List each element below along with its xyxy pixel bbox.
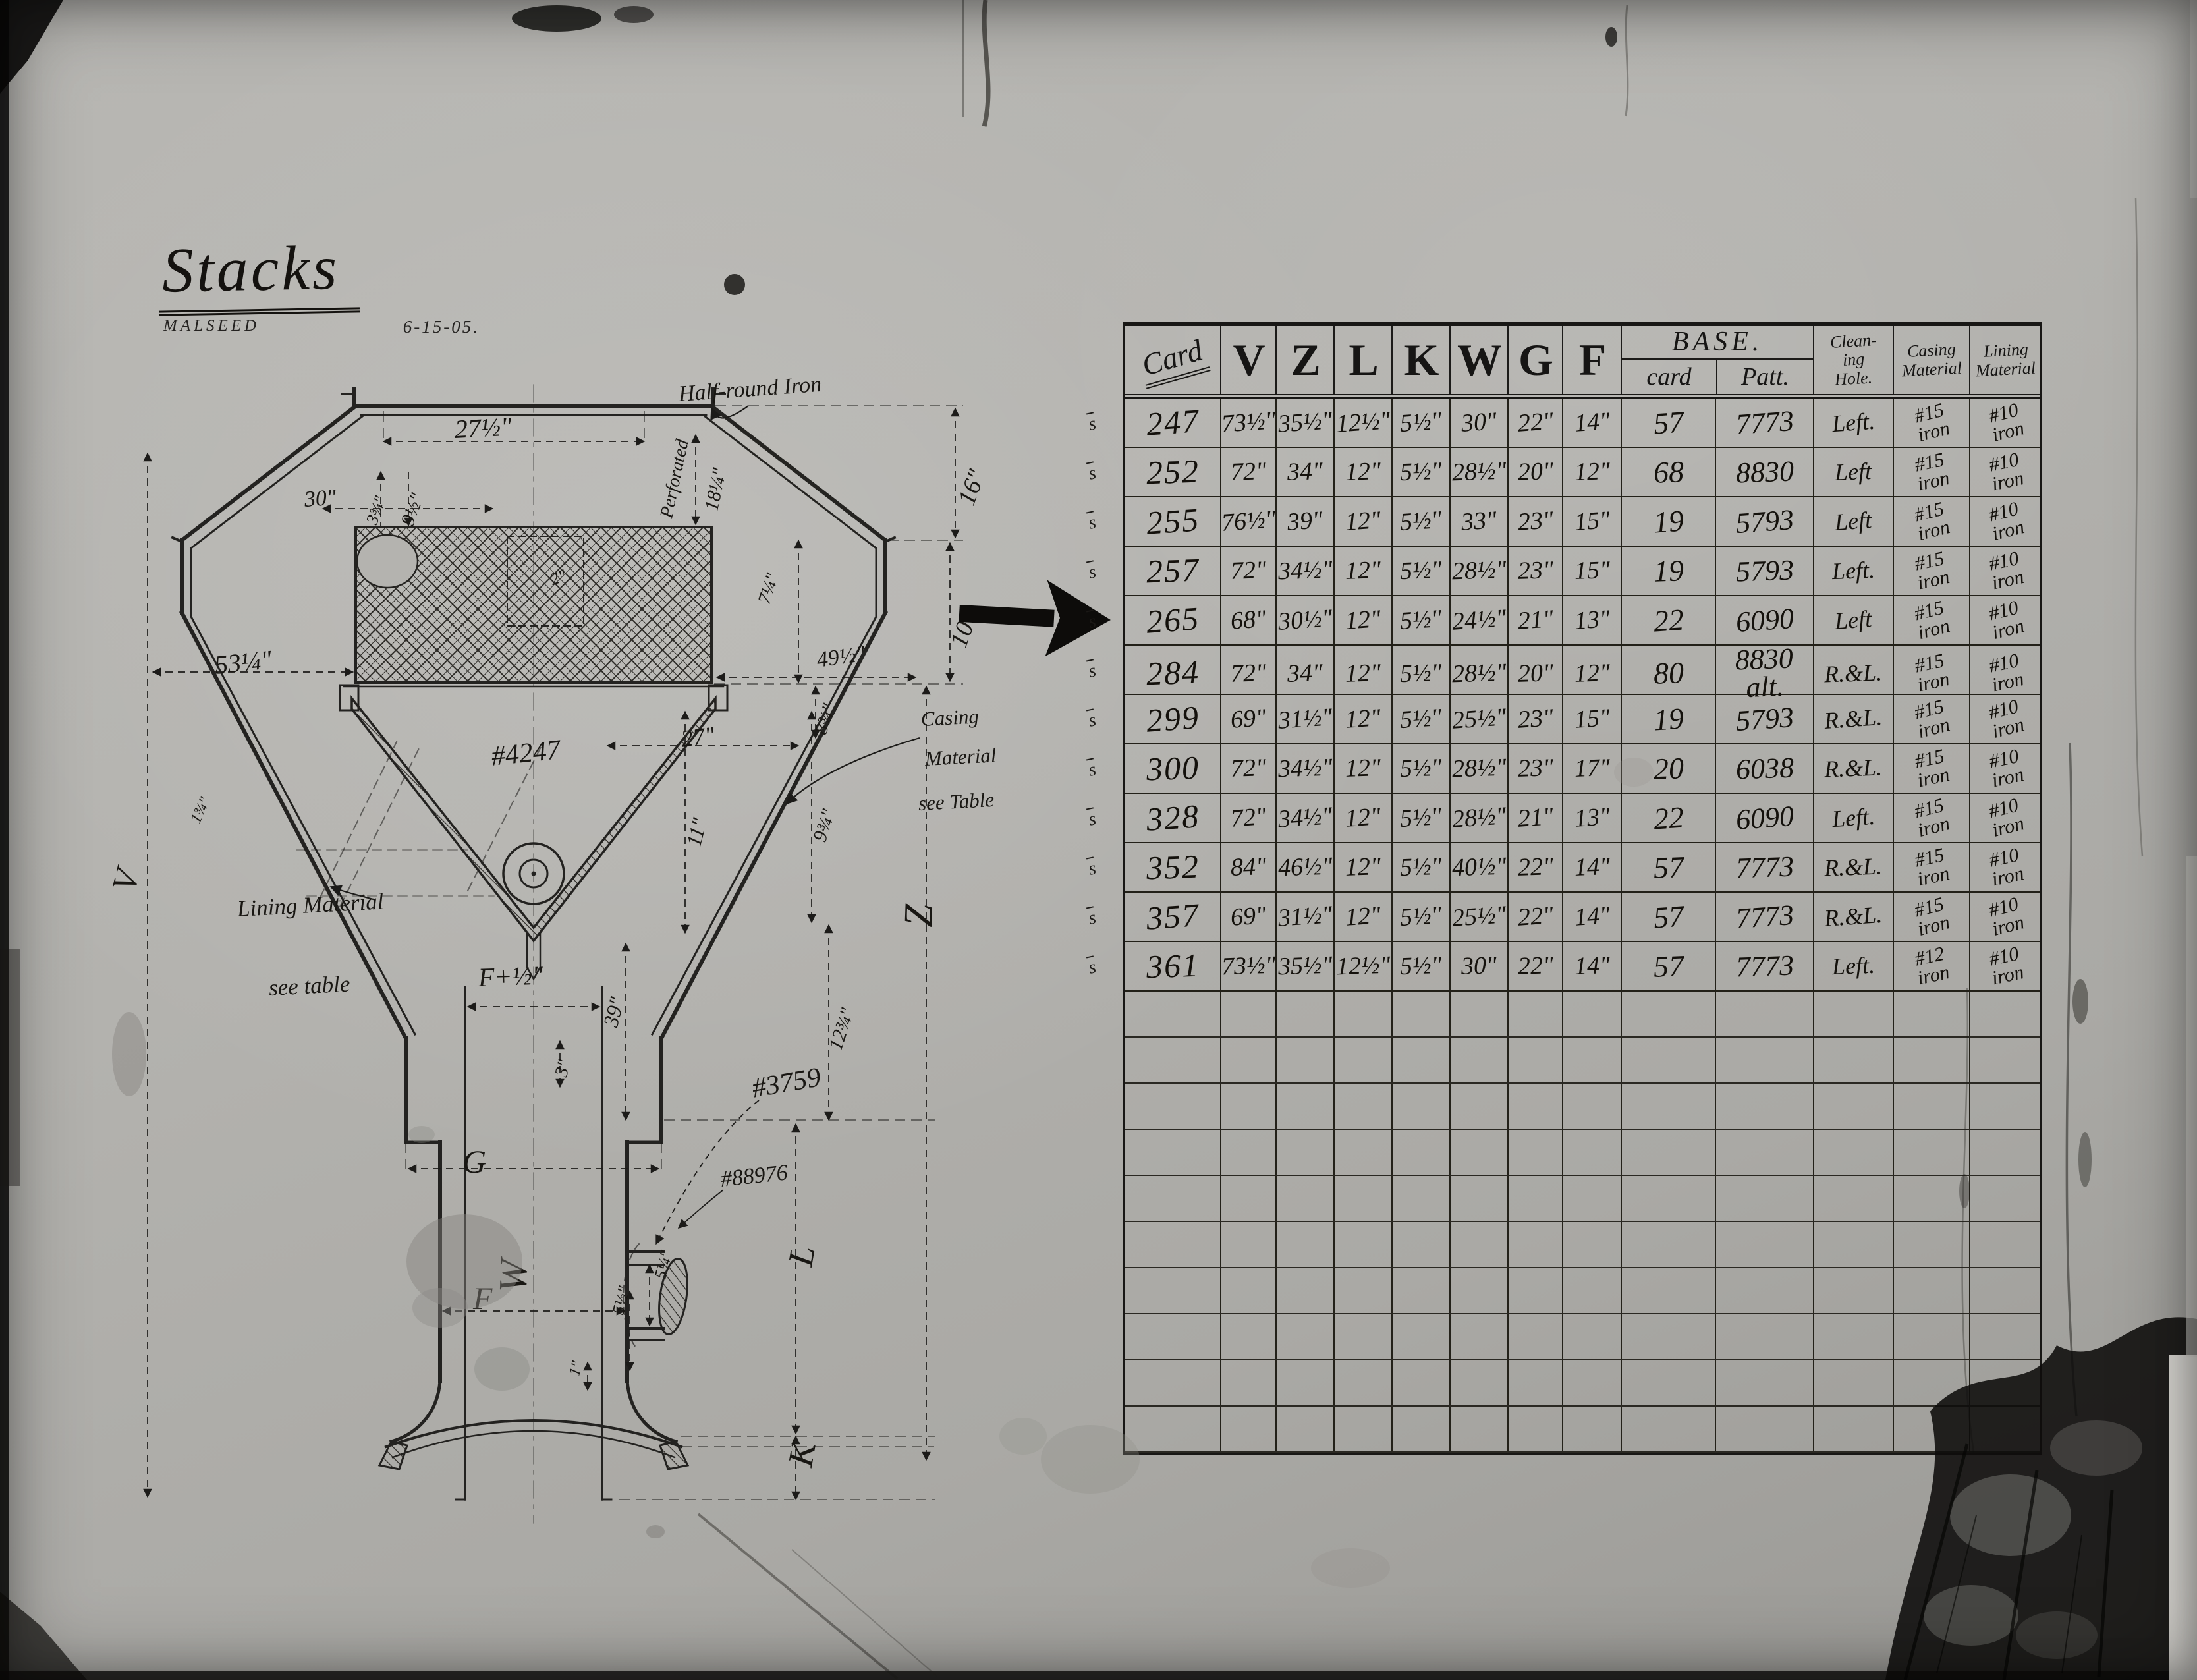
table-cell: 299 bbox=[1125, 695, 1221, 743]
table-cell: 28½" bbox=[1451, 744, 1509, 793]
table-cell: 19 bbox=[1622, 497, 1716, 546]
table-cell: 257 bbox=[1125, 547, 1221, 595]
table-cell: Left bbox=[1814, 448, 1894, 496]
table-row: 35769"31½"12"5½"25½"22"14"577773R.&L.#15… bbox=[1125, 893, 2040, 942]
table-cell bbox=[1277, 1407, 1335, 1451]
label-lining-material-line2: see table bbox=[268, 972, 350, 999]
table-cell: 6090 bbox=[1716, 794, 1814, 842]
table-cell bbox=[1335, 1038, 1393, 1082]
row-tick: s bbox=[1084, 888, 1126, 943]
table-cell: 12" bbox=[1563, 448, 1622, 496]
table-cell: 22" bbox=[1509, 399, 1563, 447]
table-cell: 12" bbox=[1335, 843, 1393, 891]
table-cell bbox=[1277, 1360, 1335, 1405]
table-cell bbox=[1125, 1084, 1221, 1129]
table-row bbox=[1125, 1084, 2040, 1130]
table-cell: 23" bbox=[1509, 744, 1563, 793]
table-cell: 14" bbox=[1563, 942, 1622, 990]
table-cell: 39" bbox=[1277, 497, 1335, 546]
table-cell: #15 iron bbox=[1894, 843, 1970, 891]
table-cell bbox=[1393, 992, 1451, 1036]
table-cell: #10 iron bbox=[1970, 893, 2041, 941]
table-cell: Left. bbox=[1814, 547, 1894, 595]
table-cell bbox=[1335, 1130, 1393, 1175]
table-cell: 5½" bbox=[1393, 942, 1451, 990]
table-cell bbox=[1894, 1268, 1970, 1313]
table-cell bbox=[1894, 1176, 1970, 1221]
table-cell: 5½" bbox=[1393, 794, 1451, 842]
label-w-dimension: W bbox=[493, 1259, 534, 1293]
table-cell: 17" bbox=[1563, 744, 1622, 793]
table-cell bbox=[1622, 992, 1716, 1036]
row-tick: s bbox=[1084, 789, 1126, 845]
table-cell: 12" bbox=[1335, 695, 1393, 743]
table-cell bbox=[1509, 1407, 1563, 1451]
table-cell bbox=[1563, 1268, 1622, 1313]
table-cell: 12" bbox=[1335, 646, 1393, 701]
table-cell: 72" bbox=[1221, 646, 1277, 701]
row-tick-marks: ssssssssssss bbox=[1088, 397, 1121, 990]
label-casing-material-line3: see Table bbox=[918, 789, 995, 814]
table-cell bbox=[1970, 1360, 2041, 1405]
table-cell: 5793 bbox=[1716, 547, 1814, 595]
table-cell bbox=[1335, 1360, 1393, 1405]
table-cell: 5½" bbox=[1393, 547, 1451, 595]
table-cell bbox=[1894, 1360, 1970, 1405]
table-cell bbox=[1622, 1038, 1716, 1082]
table-cell: 28½" bbox=[1451, 646, 1509, 701]
table-cell bbox=[1221, 1038, 1277, 1082]
table-row bbox=[1125, 1222, 2040, 1268]
table-cell: #10 iron bbox=[1970, 547, 2041, 595]
table-cell bbox=[1221, 1222, 1277, 1267]
table-row: 32872"34½"12"5½"28½"21"13"226090Left.#15… bbox=[1125, 794, 2040, 843]
table-cell bbox=[1125, 1314, 1221, 1359]
table-cell: #12 iron bbox=[1894, 942, 1970, 990]
table-cell: 20" bbox=[1509, 646, 1563, 701]
title-block: Stacks MALSEED 6-15-05. bbox=[158, 232, 527, 337]
table-cell: 69" bbox=[1221, 893, 1277, 941]
table-cell bbox=[1716, 1084, 1814, 1129]
table-cell: 73½" bbox=[1221, 942, 1277, 990]
table-cell: 35½" bbox=[1277, 942, 1335, 990]
table-cell bbox=[1451, 1084, 1509, 1129]
table-cell: 352 bbox=[1125, 843, 1221, 891]
table-cell: R.&L. bbox=[1814, 744, 1894, 793]
table-cell bbox=[1894, 1038, 1970, 1082]
table-cell bbox=[1970, 1130, 2041, 1175]
table-cell: 30" bbox=[1451, 942, 1509, 990]
table-cell bbox=[1277, 1038, 1335, 1082]
table-cell bbox=[1335, 1314, 1393, 1359]
table-cell bbox=[1970, 1176, 2041, 1221]
table-row bbox=[1125, 1038, 2040, 1084]
table-cell: Left. bbox=[1814, 942, 1894, 990]
table-cell bbox=[1125, 1222, 1221, 1267]
table-cell: 12" bbox=[1335, 596, 1393, 644]
table-cell: 72" bbox=[1221, 547, 1277, 595]
table-cell: 34½" bbox=[1277, 794, 1335, 842]
table-cell: #10 iron bbox=[1970, 497, 2041, 546]
table-cell: 5793 bbox=[1716, 497, 1814, 546]
table-cell bbox=[1814, 1407, 1894, 1451]
table-cell: 35½" bbox=[1277, 399, 1335, 447]
header-card: Card bbox=[1125, 326, 1221, 394]
table-cell bbox=[1622, 1222, 1716, 1267]
table-cell bbox=[1716, 1130, 1814, 1175]
table-row: 30072"34½"12"5½"28½"23"17"206038R.&L.#15… bbox=[1125, 744, 2040, 794]
table-cell: 6090 bbox=[1716, 596, 1814, 644]
dim-27-half: 27½" bbox=[454, 413, 513, 442]
table-cell: 12" bbox=[1335, 448, 1393, 496]
table-cell: 5793 bbox=[1716, 695, 1814, 743]
table-cell bbox=[1894, 1130, 1970, 1175]
table-cell bbox=[1277, 1222, 1335, 1267]
table-cell: 15" bbox=[1563, 695, 1622, 743]
table-cell bbox=[1451, 1268, 1509, 1313]
table-cell: 69" bbox=[1221, 695, 1277, 743]
table-cell: #15 iron bbox=[1894, 596, 1970, 644]
table-cell: 72" bbox=[1221, 448, 1277, 496]
table-cell bbox=[1125, 1268, 1221, 1313]
table-cell: Left bbox=[1814, 497, 1894, 546]
header-base-pattern: Patt. bbox=[1716, 360, 1813, 394]
table-cell bbox=[1716, 1360, 1814, 1405]
table-cell bbox=[1716, 1222, 1814, 1267]
table-cell: 5½" bbox=[1393, 843, 1451, 891]
table-cell: 328 bbox=[1125, 794, 1221, 842]
header-f: F bbox=[1563, 326, 1622, 394]
dimension-table: Card V Z L K W G F BASE. card Patt. Clea… bbox=[1123, 322, 2042, 1455]
author-name: MALSEED bbox=[163, 317, 260, 337]
table-cell bbox=[1814, 1130, 1894, 1175]
table-cell: 20" bbox=[1509, 448, 1563, 496]
row-tick: s bbox=[1084, 938, 1126, 993]
header-base: BASE. bbox=[1622, 326, 1813, 360]
table-cell bbox=[1970, 1038, 2041, 1082]
table-cell bbox=[1622, 1130, 1716, 1175]
table-cell: 57 bbox=[1622, 893, 1716, 941]
header-l: L bbox=[1335, 326, 1393, 394]
table-cell bbox=[1393, 1222, 1451, 1267]
table-row: 36173½"35½"12½"5½"30"22"14"577773Left.#1… bbox=[1125, 942, 2040, 992]
table-cell bbox=[1716, 1176, 1814, 1221]
table-cell: 12" bbox=[1335, 547, 1393, 595]
table-cell: 28½" bbox=[1451, 794, 1509, 842]
table-header: Card V Z L K W G F BASE. card Patt. Clea… bbox=[1125, 323, 2040, 399]
table-cell: 25½" bbox=[1451, 893, 1509, 941]
table-cell: R.&L. bbox=[1814, 893, 1894, 941]
table-cell: 72" bbox=[1221, 744, 1277, 793]
table-cell: 22 bbox=[1622, 794, 1716, 842]
table-cell: #15 iron bbox=[1894, 399, 1970, 447]
table-cell bbox=[1563, 1038, 1622, 1082]
row-tick: s bbox=[1084, 641, 1126, 696]
table-cell: 13" bbox=[1563, 794, 1622, 842]
dim-53-quarter: 53¼" bbox=[213, 646, 273, 679]
table-cell bbox=[1509, 1360, 1563, 1405]
header-k: K bbox=[1393, 326, 1451, 394]
table-cell: 12" bbox=[1335, 893, 1393, 941]
table-cell: 22" bbox=[1509, 942, 1563, 990]
label-z-dimension: Z bbox=[898, 903, 939, 928]
table-cell: 12" bbox=[1335, 744, 1393, 793]
table-cell bbox=[1716, 992, 1814, 1036]
table-cell bbox=[1622, 1360, 1716, 1405]
table-cell: 300 bbox=[1125, 744, 1221, 793]
table-cell: #15 iron bbox=[1894, 695, 1970, 743]
table-cell: #10 iron bbox=[1970, 399, 2041, 447]
table-row bbox=[1125, 1360, 2040, 1407]
table-cell: 34½" bbox=[1277, 547, 1335, 595]
table-cell: Left. bbox=[1814, 794, 1894, 842]
table-cell: 33" bbox=[1451, 497, 1509, 546]
label-casing-material-line1: Casing bbox=[920, 706, 979, 729]
table-cell: 7773 bbox=[1716, 399, 1814, 447]
table-cell bbox=[1277, 992, 1335, 1036]
table-cell bbox=[1622, 1176, 1716, 1221]
table-cell: 21" bbox=[1509, 596, 1563, 644]
table-row: 25576½"39"12"5½"33"23"15"195793Left#15 i… bbox=[1125, 497, 2040, 547]
photostat-page: Stacks MALSEED 6-15-05. bbox=[0, 0, 2197, 1680]
table-cell: 255 bbox=[1125, 497, 1221, 546]
table-cell bbox=[1451, 1407, 1509, 1451]
table-cell: #15 iron bbox=[1894, 448, 1970, 496]
table-cell: 57 bbox=[1622, 942, 1716, 990]
table-cell bbox=[1221, 1360, 1277, 1405]
row-tick: s bbox=[1084, 542, 1126, 598]
table-cell: 20 bbox=[1622, 744, 1716, 793]
table-cell: 68" bbox=[1221, 596, 1277, 644]
label-f-dimension: F bbox=[473, 1283, 492, 1315]
table-cell bbox=[1451, 992, 1509, 1036]
table-cell: 30" bbox=[1451, 399, 1509, 447]
table-cell bbox=[1894, 1222, 1970, 1267]
table-cell: 57 bbox=[1622, 399, 1716, 447]
table-cell bbox=[1716, 1268, 1814, 1313]
table-cell bbox=[1277, 1084, 1335, 1129]
table-cell bbox=[1622, 1268, 1716, 1313]
table-cell: 19 bbox=[1622, 547, 1716, 595]
table-cell: 5½" bbox=[1393, 399, 1451, 447]
table-cell: 23" bbox=[1509, 497, 1563, 546]
table-cell: 7773 bbox=[1716, 843, 1814, 891]
table-cell: 19 bbox=[1622, 695, 1716, 743]
table-cell bbox=[1814, 1222, 1894, 1267]
table-cell: R.&L. bbox=[1814, 843, 1894, 891]
table-cell: 40½" bbox=[1451, 843, 1509, 891]
table-cell bbox=[1393, 1038, 1451, 1082]
page-title: Stacks bbox=[157, 230, 360, 316]
table-cell bbox=[1894, 1314, 1970, 1359]
table-cell: 7773 bbox=[1716, 893, 1814, 941]
table-row: 26568"30½"12"5½"24½"21"13"226090Left#15 … bbox=[1125, 596, 2040, 646]
header-cleaning-hole: Clean-ingHole. bbox=[1814, 326, 1894, 394]
label-g-dimension: G bbox=[462, 1145, 486, 1178]
table-cell: 23" bbox=[1509, 695, 1563, 743]
table-cell bbox=[1125, 1038, 1221, 1082]
table-cell: 12" bbox=[1335, 497, 1393, 546]
table-cell bbox=[1335, 1407, 1393, 1451]
table-cell bbox=[1563, 1314, 1622, 1359]
table-cell: 68 bbox=[1622, 448, 1716, 496]
table-cell bbox=[1125, 992, 1221, 1036]
table-cell: 8830 bbox=[1716, 448, 1814, 496]
row-tick: s bbox=[1084, 592, 1126, 647]
table-cell: #10 iron bbox=[1970, 448, 2041, 496]
dim-27: 27" bbox=[679, 723, 716, 751]
table-row: 29969"31½"12"5½"25½"23"15"195793R.&L.#15… bbox=[1125, 695, 2040, 744]
header-v: V bbox=[1221, 326, 1277, 394]
table-cell: 252 bbox=[1125, 448, 1221, 496]
table-cell: 15" bbox=[1563, 497, 1622, 546]
table-cell bbox=[1716, 1038, 1814, 1082]
table-cell bbox=[1221, 1314, 1277, 1359]
table-cell bbox=[1277, 1268, 1335, 1313]
table-cell: 6038 bbox=[1716, 744, 1814, 793]
table-cell: #10 iron bbox=[1970, 646, 2041, 701]
table-cell: 23" bbox=[1509, 547, 1563, 595]
table-cell: 34½" bbox=[1277, 744, 1335, 793]
table-cell: 8830 alt. bbox=[1716, 646, 1814, 701]
table-cell bbox=[1814, 1084, 1894, 1129]
table-cell: 357 bbox=[1125, 893, 1221, 941]
table-cell: 12½" bbox=[1335, 399, 1393, 447]
table-cell bbox=[1814, 1176, 1894, 1221]
table-cell bbox=[1451, 1176, 1509, 1221]
row-tick: s bbox=[1084, 740, 1126, 795]
table-cell: 76½" bbox=[1221, 497, 1277, 546]
table-cell bbox=[1393, 1314, 1451, 1359]
table-cell bbox=[1277, 1314, 1335, 1359]
table-cell: Left. bbox=[1814, 399, 1894, 447]
table-cell: 5½" bbox=[1393, 448, 1451, 496]
table-cell bbox=[1277, 1130, 1335, 1175]
table-cell: 14" bbox=[1563, 843, 1622, 891]
table-cell bbox=[1563, 1222, 1622, 1267]
table-cell: 15" bbox=[1563, 547, 1622, 595]
table-cell bbox=[1335, 1084, 1393, 1129]
header-casing-material: CasingMaterial bbox=[1894, 326, 1970, 394]
table-cell bbox=[1393, 1360, 1451, 1405]
table-cell bbox=[1125, 1360, 1221, 1405]
table-cell bbox=[1814, 1360, 1894, 1405]
table-cell bbox=[1814, 1268, 1894, 1313]
table-cell bbox=[1221, 1130, 1277, 1175]
table-cell bbox=[1970, 1314, 2041, 1359]
table-cell bbox=[1970, 1407, 2041, 1451]
table-cell: R.&L. bbox=[1814, 695, 1894, 743]
table-cell: 5½" bbox=[1393, 744, 1451, 793]
table-cell bbox=[1563, 1130, 1622, 1175]
table-cell: #10 iron bbox=[1970, 596, 2041, 644]
row-tick: s bbox=[1084, 493, 1126, 548]
table-cell: #15 iron bbox=[1894, 744, 1970, 793]
table-cell bbox=[1451, 1130, 1509, 1175]
table-cell bbox=[1393, 1268, 1451, 1313]
header-g: G bbox=[1509, 326, 1563, 394]
table-cell: 12" bbox=[1563, 646, 1622, 701]
table-cell bbox=[1716, 1407, 1814, 1451]
table-cell: #10 iron bbox=[1970, 744, 2041, 793]
header-z: Z bbox=[1277, 326, 1335, 394]
table-cell bbox=[1814, 992, 1894, 1036]
header-base-card: card bbox=[1622, 360, 1716, 394]
table-cell bbox=[1622, 1314, 1716, 1359]
table-cell bbox=[1125, 1176, 1221, 1221]
table-cell bbox=[1393, 1130, 1451, 1175]
table-cell bbox=[1563, 1407, 1622, 1451]
dim-f-plus-half: F+½" bbox=[478, 963, 543, 991]
table-cell: 22" bbox=[1509, 893, 1563, 941]
table-row: 25272"34"12"5½"28½"20"12"688830Left#15 i… bbox=[1125, 448, 2040, 497]
table-cell: 284 bbox=[1125, 646, 1221, 701]
table-cell bbox=[1335, 1268, 1393, 1313]
table-row bbox=[1125, 1407, 2040, 1453]
table-cell: 22" bbox=[1509, 843, 1563, 891]
table-cell bbox=[1563, 1360, 1622, 1405]
table-cell: 14" bbox=[1563, 399, 1622, 447]
table-cell bbox=[1335, 992, 1393, 1036]
table-row: 35284"46½"12"5½"40½"22"14"577773R.&L.#15… bbox=[1125, 843, 2040, 893]
table-cell bbox=[1125, 1130, 1221, 1175]
header-lining-material: LiningMaterial bbox=[1970, 326, 2041, 394]
header-w: W bbox=[1451, 326, 1509, 394]
part-number-4247: #4247 bbox=[490, 736, 562, 771]
table-cell: 5½" bbox=[1393, 695, 1451, 743]
table-cell bbox=[1563, 1084, 1622, 1129]
table-cell bbox=[1894, 1084, 1970, 1129]
table-cell: R.&L. bbox=[1814, 646, 1894, 701]
table-cell bbox=[1451, 1038, 1509, 1082]
table-cell: 7773 bbox=[1716, 942, 1814, 990]
table-cell: #15 iron bbox=[1894, 497, 1970, 546]
table-cell: 57 bbox=[1622, 843, 1716, 891]
table-cell bbox=[1509, 1038, 1563, 1082]
table-cell: #10 iron bbox=[1970, 942, 2041, 990]
table-cell bbox=[1221, 1268, 1277, 1313]
table-cell: 84" bbox=[1221, 843, 1277, 891]
label-casing-material-line2: Material bbox=[924, 744, 997, 769]
table-cell: 34" bbox=[1277, 646, 1335, 701]
header-base-group: BASE. card Patt. bbox=[1622, 326, 1814, 394]
table-cell: Left bbox=[1814, 596, 1894, 644]
table-cell bbox=[1970, 1222, 2041, 1267]
table-cell: 25½" bbox=[1451, 695, 1509, 743]
table-cell bbox=[1622, 1407, 1716, 1451]
table-cell bbox=[1509, 1268, 1563, 1313]
table-cell bbox=[1814, 1038, 1894, 1082]
table-cell bbox=[1335, 1176, 1393, 1221]
stack-drawing: Half-round Iron27½"30"3¾"9½"Perforated18… bbox=[99, 343, 1021, 1528]
table-cell bbox=[1451, 1360, 1509, 1405]
row-tick: s bbox=[1084, 443, 1126, 499]
row-tick: s bbox=[1084, 394, 1126, 449]
row-tick: s bbox=[1084, 690, 1126, 746]
table-cell: 46½" bbox=[1277, 843, 1335, 891]
table-cell: 5½" bbox=[1393, 646, 1451, 701]
table-cell bbox=[1814, 1314, 1894, 1359]
table-cell bbox=[1451, 1222, 1509, 1267]
table-cell bbox=[1716, 1314, 1814, 1359]
table-cell bbox=[1393, 1407, 1451, 1451]
table-cell: 28½" bbox=[1451, 547, 1509, 595]
table-cell: 22 bbox=[1622, 596, 1716, 644]
stack-section-svg bbox=[99, 343, 1021, 1528]
table-cell: 28½" bbox=[1451, 448, 1509, 496]
table-cell: 31½" bbox=[1277, 893, 1335, 941]
drawing-date: 6-15-05. bbox=[403, 317, 480, 337]
